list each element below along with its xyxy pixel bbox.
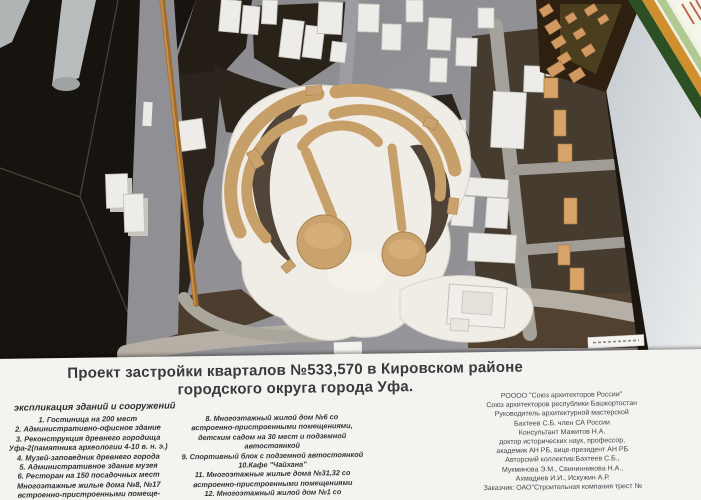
legend-column-2: 8. Многоэтажный жилой дом №6 совстроенно… bbox=[176, 412, 369, 500]
credits-column: РОООО "Союз архитекторов России"Союз арх… bbox=[431, 389, 692, 494]
legend-header: экспликация зданий и сооружений bbox=[0, 400, 190, 413]
exhibition-photo: Проект застройки кварталов №533,570 в Ки… bbox=[0, 0, 701, 500]
model-photo bbox=[0, 0, 701, 366]
legend-column-1: 1. Гостиница на 200 мест2. Административ… bbox=[0, 413, 181, 500]
explication-panel: Проект застройки кварталов №533,570 в Ки… bbox=[0, 349, 701, 500]
road-sign-label bbox=[142, 102, 152, 126]
sport-block bbox=[446, 284, 507, 334]
